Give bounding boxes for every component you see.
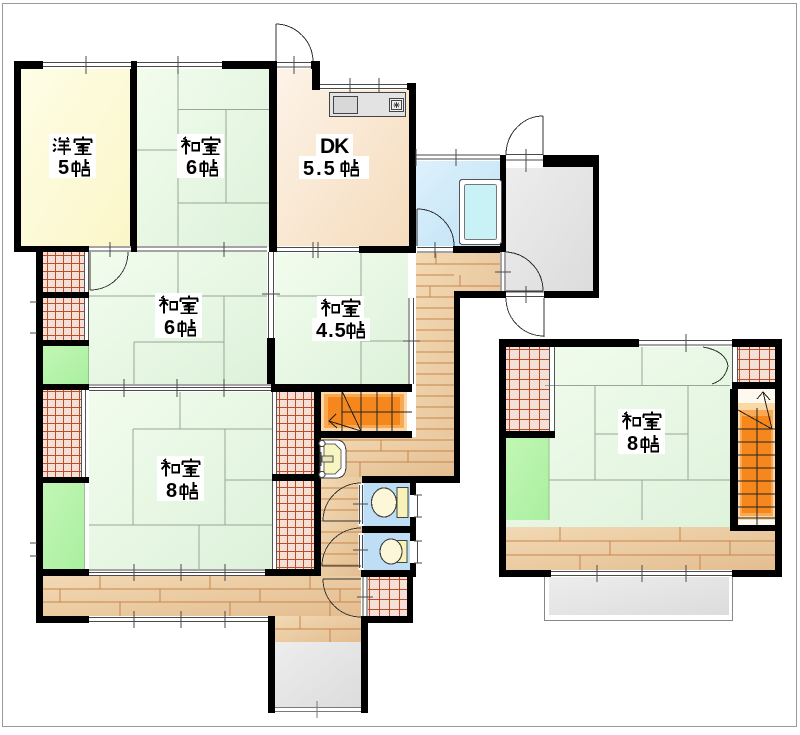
- svg-text:6: 6: [164, 317, 175, 339]
- svg-text:DK: DK: [320, 135, 349, 158]
- svg-text:5: 5: [58, 157, 69, 179]
- svg-text:6: 6: [186, 157, 197, 179]
- svg-text:4.5: 4.5: [316, 320, 347, 342]
- svg-text:8: 8: [166, 480, 177, 502]
- svg-text:8: 8: [627, 433, 638, 455]
- svg-text:5.5: 5.5: [303, 158, 337, 180]
